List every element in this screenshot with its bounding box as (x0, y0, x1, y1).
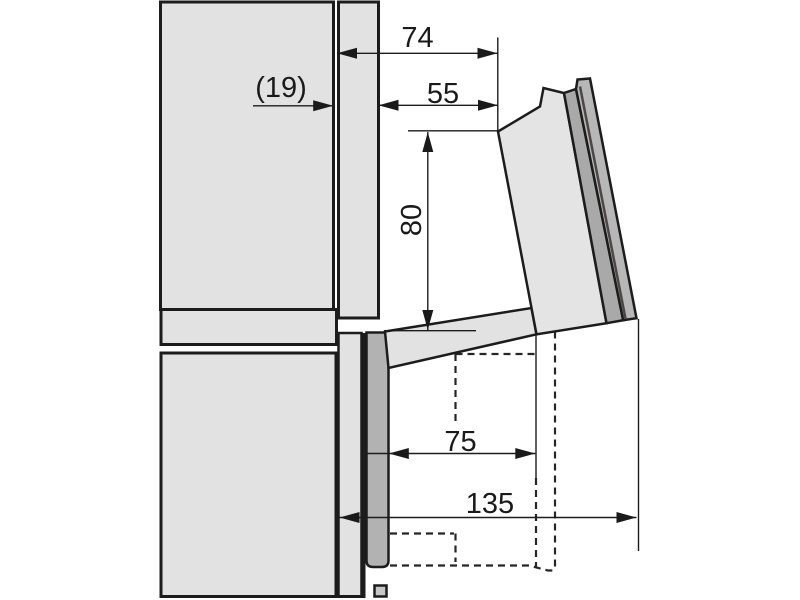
dim-135-arrow-right-icon (617, 512, 637, 523)
installation-diagram: 74 (19) 55 80 75 (0, 0, 800, 600)
dim-55-arrow-left-icon (379, 100, 399, 111)
upper-furniture-front (339, 2, 379, 318)
lower-appliance-fascia (339, 333, 362, 597)
lower-cabinet-panel (161, 353, 336, 597)
dim-55-label: 55 (427, 78, 459, 110)
worktop-band (161, 310, 337, 345)
dim-55-arrow-right-icon (478, 100, 498, 111)
dim-74-label: 74 (401, 22, 433, 54)
plinth-foot (375, 586, 387, 597)
dimension-75: 75 (367, 426, 536, 459)
dimension-55: 55 (379, 78, 499, 111)
dashed-bottom-line (390, 566, 556, 571)
door-hinge-arm (385, 308, 537, 368)
dim-74-arrow-right-icon (478, 48, 498, 59)
dim-19-label: (19) (255, 72, 307, 104)
upper-cabinet-panel (161, 2, 334, 310)
dim-80-label: 80 (396, 204, 428, 236)
dim-80-arrow-up-icon (422, 132, 433, 152)
dimension-80: 80 (396, 132, 433, 330)
dim-75-label: 75 (444, 426, 476, 458)
dim-75-arrow-left-icon (389, 448, 409, 459)
dim-135-label: 135 (466, 488, 514, 520)
diagram-canvas: 74 (19) 55 80 75 (0, 0, 800, 600)
dim-75-arrow-right-icon (515, 448, 535, 459)
closed-door-panel (367, 333, 389, 568)
